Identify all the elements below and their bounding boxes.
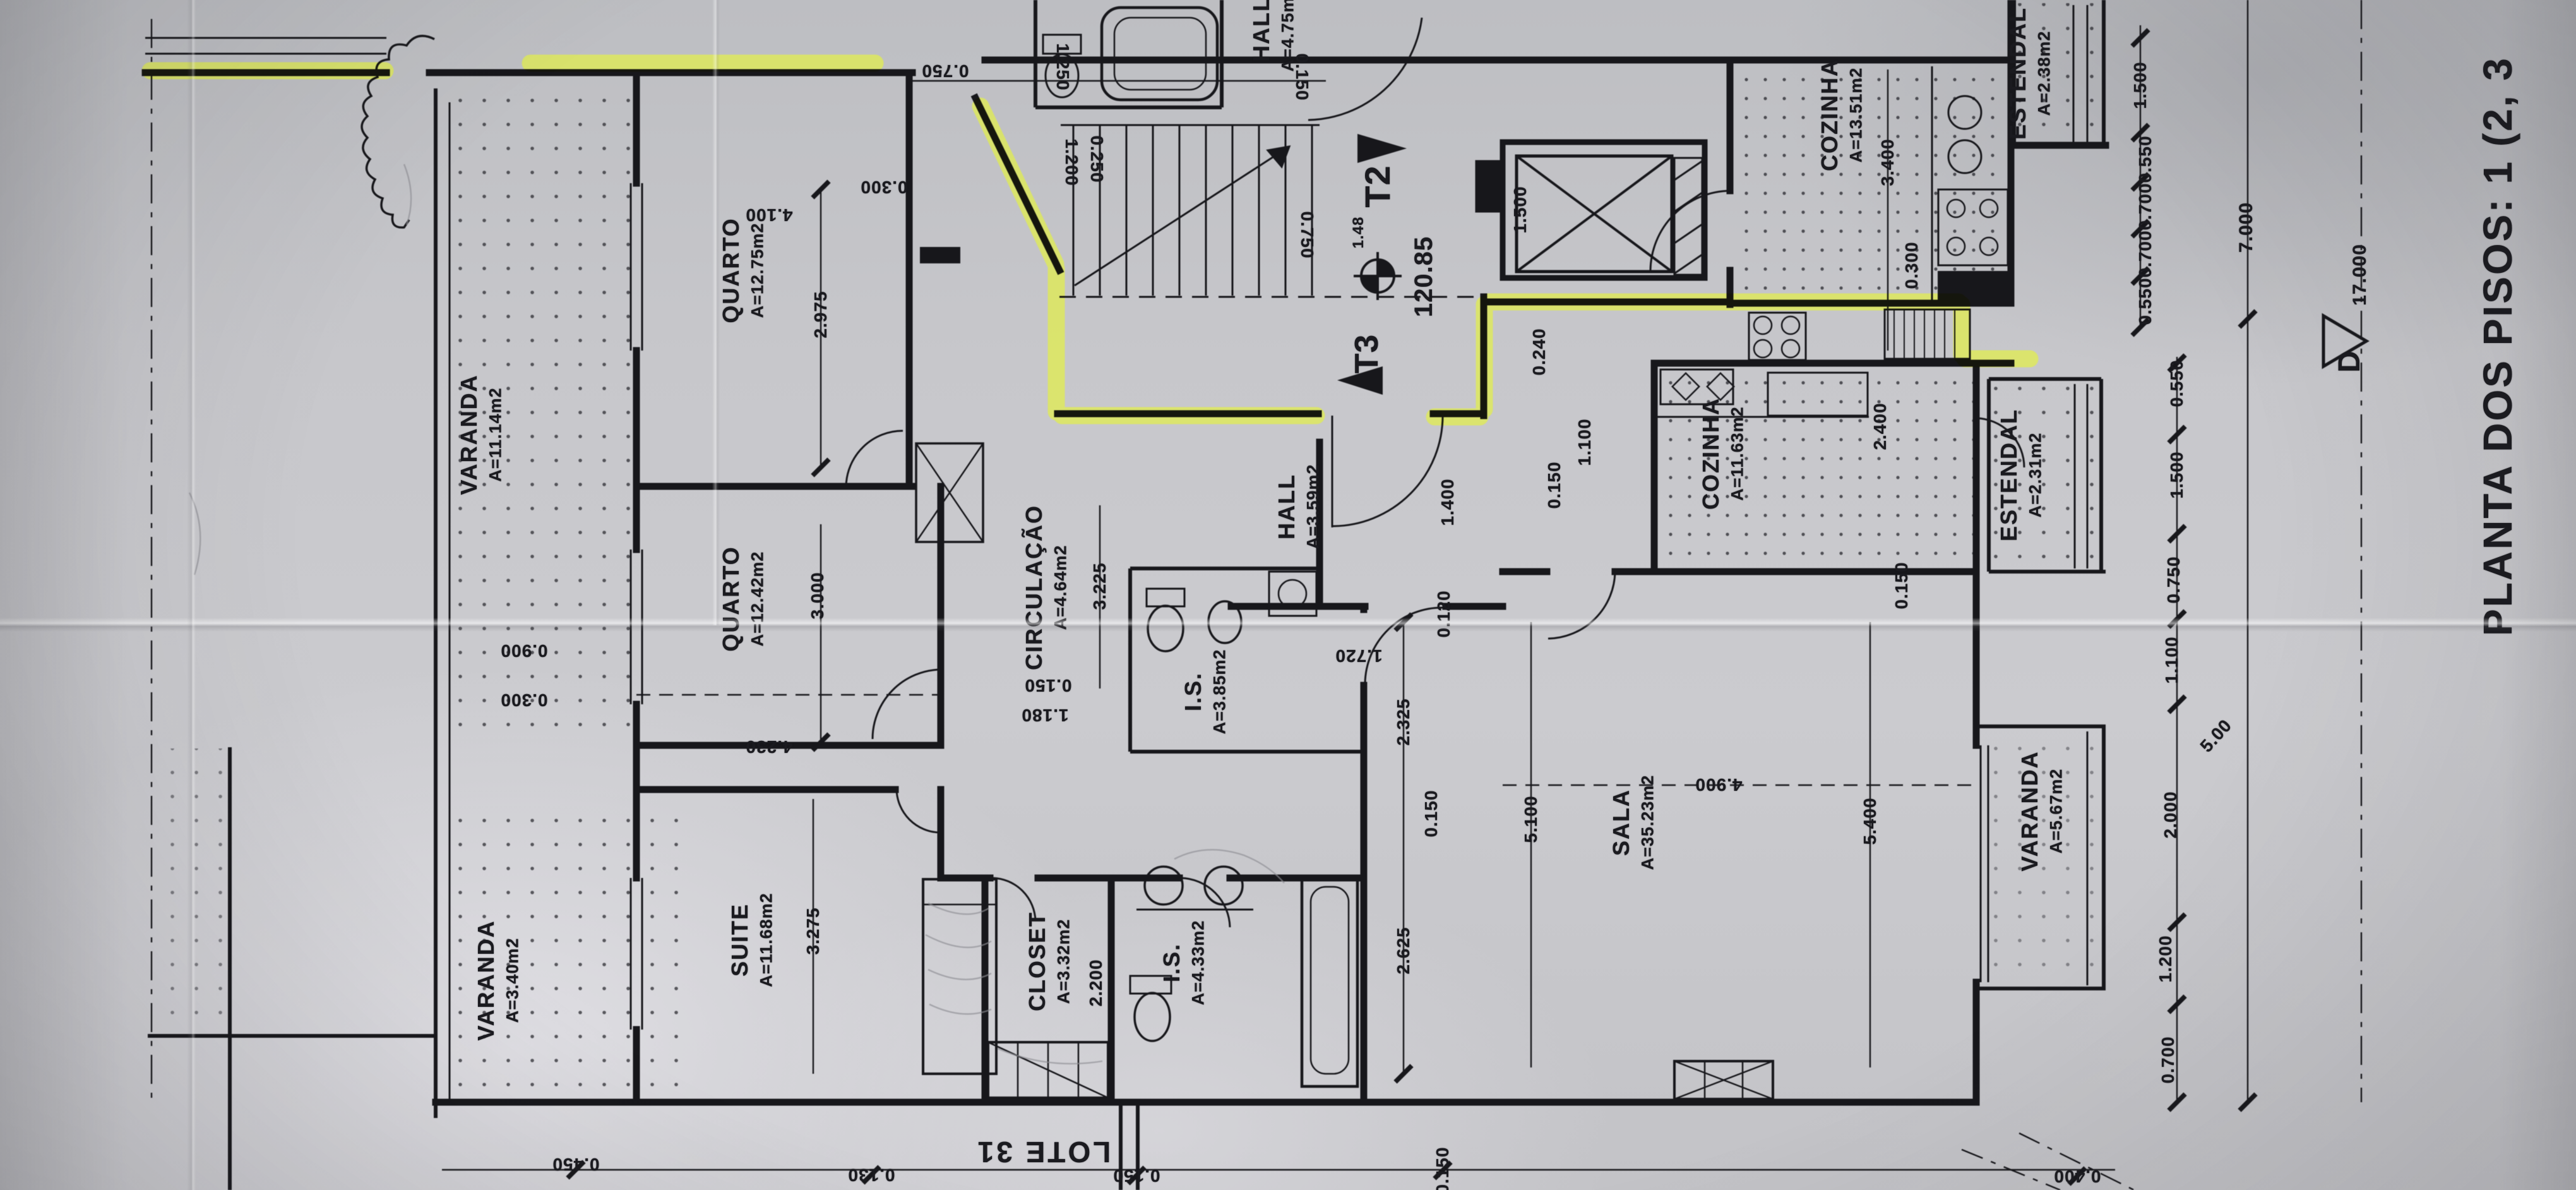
dim-label-1-200-45: 1.200	[2157, 935, 2174, 982]
dim-label-0-750-12: 0.750	[1298, 211, 1316, 258]
dim-label-1-100-43: 1.100	[2163, 636, 2181, 683]
dim-label-2-000-44: 2.000	[2162, 791, 2179, 838]
lot-label: LOTE 31	[975, 1138, 1111, 1167]
room-area-i-s-7: A=3.85m2	[1212, 649, 1229, 735]
dim-label-0-750-7: 0.750	[921, 62, 969, 80]
dim-label-2-625-21: 2.625	[1395, 927, 1412, 974]
dim-label-2-400-31: 2.400	[1871, 402, 1889, 450]
dim-label-7-000-48: 7.000	[2237, 202, 2256, 253]
dim-label-0-900-4: 0.900	[500, 642, 547, 659]
room-name-sala-15: SALA	[1610, 789, 1633, 856]
dim-label-0-250-10: 0.250	[1088, 135, 1106, 183]
room-name-circula-o-8: CIRCULAÇÃO	[1023, 505, 1046, 670]
room-name-hall-10: HALL	[1250, 0, 1273, 62]
dim-label-1-180-15: 1.180	[1021, 706, 1068, 724]
room-area-closet-5: A=3.32m2	[1056, 919, 1073, 1004]
room-name-hall-9: HALL	[1275, 474, 1298, 539]
dim-label-5-400-23: 5.400	[1861, 797, 1879, 844]
room-name-estendal-14: ESTENDAL	[1998, 409, 2020, 541]
dim-label-5-00-47: 5.00	[2197, 716, 2235, 755]
room-name-varanda-16: VARANDA	[2018, 750, 2041, 871]
room-area-suite-3: A=11.68m2	[758, 892, 775, 987]
room-area-varanda-0: A=11.14m2	[487, 387, 504, 481]
room-name-varanda-0: VARANDA	[458, 374, 480, 495]
unit-marker-t2: T2	[1360, 165, 1395, 207]
dim-label-1-720-18: 1.720	[1335, 647, 1382, 664]
dim-label-0-750-42: 0.750	[2165, 556, 2183, 603]
room-name-i-s-6: I.S.	[1160, 943, 1183, 982]
room-name-i-s-7: I.S.	[1182, 672, 1205, 711]
dim-label-0-300-5: 0.300	[500, 691, 547, 709]
dim-label-0-150-53: 0.150	[1434, 1146, 1452, 1190]
dim-label-3-400-29: 3.400	[1879, 138, 1897, 186]
room-name-varanda-4: VARANDA	[475, 920, 498, 1040]
room-area-circula-o-8: A=4.64m2	[1052, 545, 1070, 630]
room-area-estendal-14: A=2.31m2	[2027, 433, 2044, 518]
dim-label-0-120-17: 0.120	[1435, 590, 1453, 637]
room-name-cozinha-12: COZINHA	[1700, 397, 1722, 510]
room-area-i-s-6: A=4.33m2	[1190, 920, 1207, 1006]
dim-label-0-150-20: 0.150	[1422, 790, 1440, 837]
dim-label-0-150-11: 0.150	[1293, 53, 1311, 100]
dim-label-0-700-37: 0.700	[2137, 183, 2154, 230]
dim-label-0-150-14: 0.150	[1024, 676, 1071, 694]
dim-label-17-000-49: 17.000	[2351, 244, 2370, 306]
level-note: 1.48	[1351, 217, 1366, 249]
dim-label-3-275-33: 3.275	[804, 907, 822, 954]
room-name-cozinha-11: COZINHA	[1818, 59, 1841, 171]
dim-label-0-400-54: 0.400	[2053, 1167, 2101, 1185]
dim-label-0-240-26: 0.240	[1530, 328, 1548, 375]
room-area-cozinha-12: A=11.63m2	[1729, 406, 1746, 500]
unit-marker-t3: T3	[1351, 334, 1383, 374]
dim-label-4-900-24: 4.900	[1695, 776, 1742, 793]
dim-label-0-550-40: 0.550	[2168, 359, 2186, 407]
elevation-value: 120.85	[1411, 236, 1436, 317]
room-area-cozinha-11: A=13.51m2	[1848, 68, 1865, 163]
section-letter: D	[2335, 350, 2365, 373]
floor-plan-photo: VARANDAA=11.14m2QUARTOA=12.75m2QUARTOA=1…	[0, 0, 2576, 1190]
dim-label-4-100-1: 4.100	[745, 206, 792, 224]
dim-label-0-150-28: 0.150	[1546, 461, 1563, 508]
dim-label-0-300-6: 0.300	[860, 178, 907, 196]
dim-label-1-200-9: 1.200	[1063, 138, 1080, 186]
room-name-quarto-2: QUARTO	[720, 546, 742, 651]
dim-label-1-250-8: 1.250	[1054, 43, 1071, 90]
room-area-quarto-2: A=12.42m2	[749, 551, 766, 647]
room-name-suite-3: SUITE	[729, 903, 751, 977]
dim-label-0-450-50: 0.450	[552, 1155, 599, 1173]
room-area-hall-9: A=3.59m2	[1305, 464, 1322, 550]
dim-label-1-500-41: 1.500	[2168, 451, 2186, 498]
text-labels-layer: VARANDAA=11.14m2QUARTOA=12.75m2QUARTOA=1…	[0, 0, 2576, 1190]
dim-label-1-500-25: 1.500	[1512, 186, 1529, 233]
dim-label-0-150-52: 0.150	[1112, 1167, 1160, 1184]
room-area-quarto-1: A=12.75m2	[749, 223, 766, 318]
room-area-varanda-4: A=3.40m2	[504, 938, 522, 1023]
dim-label-2-200-34: 2.200	[1087, 959, 1105, 1006]
dim-label-0-130-51: 0.130	[847, 1166, 895, 1184]
dim-label-1-100-27: 1.100	[1576, 418, 1594, 466]
dim-label-0-700-38: 0.700	[2137, 230, 2154, 277]
dim-label-2-975-0: 2.975	[812, 291, 830, 338]
room-area-estendal-13: A=2.38m2	[2036, 31, 2053, 116]
dim-label-4-230-3: 4.230	[745, 738, 792, 755]
dim-label-0-700-46: 0.700	[2159, 1036, 2177, 1083]
dim-label-2-325-19: 2.325	[1395, 698, 1412, 745]
dim-label-1-400-16: 1.400	[1439, 478, 1457, 526]
room-name-quarto-1: QUARTO	[720, 217, 742, 323]
room-area-varanda-16: A=5.67m2	[2048, 769, 2065, 854]
sheet-title: PLANTA DOS PISOS: 1 (2, 3	[2478, 56, 2518, 636]
dim-label-1-500-35: 1.500	[2132, 61, 2149, 109]
dim-label-0-300-30: 0.300	[1903, 241, 1921, 289]
dim-label-0-150-32: 0.150	[1893, 562, 1911, 609]
room-name-estendal-13: ESTENDAL	[2007, 7, 2029, 140]
dim-label-5-100-22: 5.100	[1522, 795, 1540, 843]
room-area-sala-15: A=35.23m2	[1640, 775, 1657, 870]
dim-label-0-550-36: 0.550	[2137, 135, 2154, 183]
dim-label-3-000-2: 3.000	[809, 572, 826, 619]
dim-label-0-550-39: 0.550	[2137, 277, 2154, 325]
room-name-closet-5: CLOSET	[1026, 911, 1049, 1011]
dim-label-3-225-13: 3.225	[1091, 562, 1109, 610]
